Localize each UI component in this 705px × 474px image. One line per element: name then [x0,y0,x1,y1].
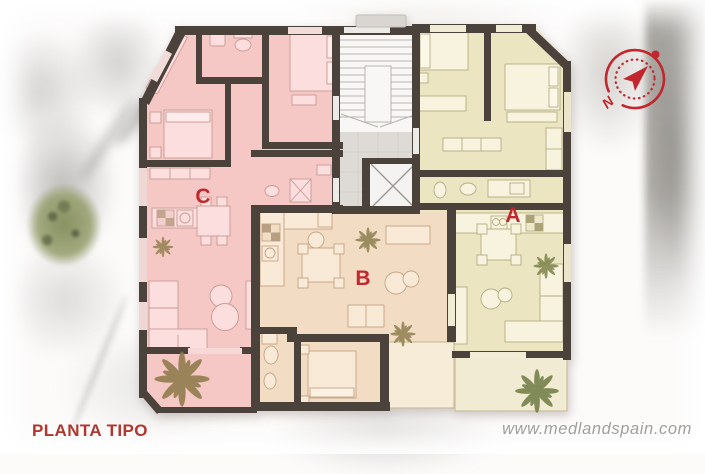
palm-icon [533,253,558,278]
watermark: www.medlandspain.com [502,420,692,439]
stair-runner [365,66,391,122]
palm-icon [154,351,209,406]
apartment-b-terrace [388,342,454,408]
compass-arrow-icon [623,66,648,91]
apartment-label-c: C [195,185,210,208]
compass-north-label: N [599,92,618,111]
palm-icon [153,237,174,258]
apartment-label-b: B [355,267,370,290]
top-balcony-tab [356,15,406,27]
plan-title: PLANTA TIPO [32,421,148,441]
palm-icon [515,369,559,413]
compass-dot [652,51,660,59]
apartment-label-a: A [505,204,520,227]
palm-icon [355,227,380,252]
compass-icon: N [592,36,678,122]
building: C B A [139,15,571,414]
palm-icon [390,321,415,346]
